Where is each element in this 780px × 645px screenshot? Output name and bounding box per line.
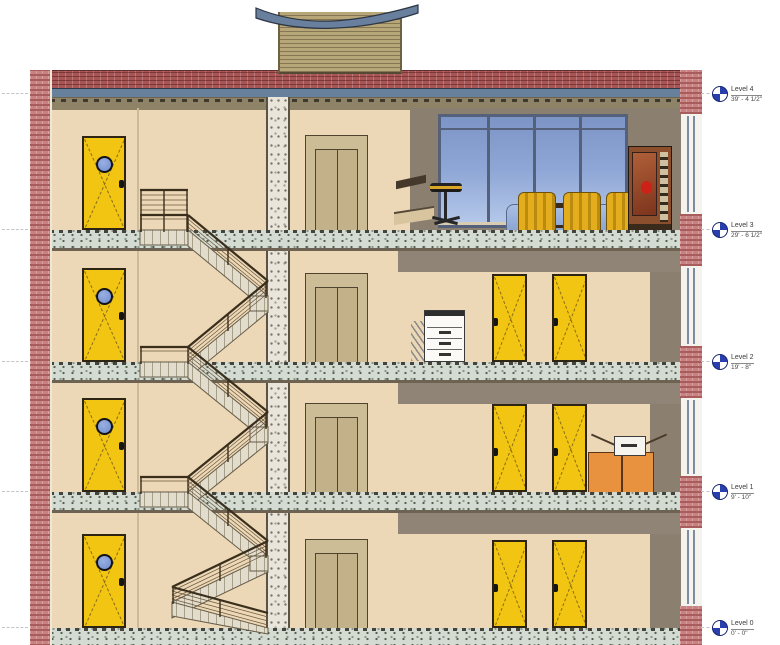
level-name: Level 2 (731, 354, 754, 364)
level-label: Level 0 0' - 0" (731, 620, 754, 638)
copier-drawer (427, 349, 462, 360)
roof-slab (30, 88, 700, 97)
ceiling-bulkhead (398, 250, 681, 272)
level-marker-level-3[interactable]: Level 3 29' - 6 1/2" (712, 222, 762, 240)
porthole-window (96, 288, 113, 305)
porthole-window (96, 156, 113, 173)
elevator-door-panels (315, 149, 358, 231)
door (492, 540, 527, 628)
level-label: Level 4 39' - 4 1/2" (731, 86, 762, 104)
copier-control-panel (425, 311, 464, 316)
vending-buttons (659, 151, 669, 223)
door-porthole (82, 268, 126, 362)
level-datum-target-icon (712, 354, 728, 370)
left-exterior-wall (30, 70, 52, 645)
right-wall-window (681, 266, 701, 346)
level-line (2, 93, 28, 94)
level-datum-target-icon (712, 86, 728, 102)
door (492, 274, 527, 362)
elevator-door-panels (315, 287, 358, 363)
door-swing-line (555, 275, 587, 359)
level-elevation: 0' - 0" (731, 630, 754, 637)
level-name: Level 1 (731, 484, 754, 494)
door-handle (553, 318, 558, 326)
door-porthole (82, 136, 126, 230)
bar-stool-seat (430, 183, 462, 192)
curved-roof (250, 0, 428, 40)
door (552, 404, 587, 492)
elevator-door-panels (315, 417, 358, 493)
right-wall-brick (680, 214, 702, 266)
building-section-view: Level 4 39' - 4 1/2" Level 3 29' - 6 1/2… (0, 0, 780, 645)
copier-drawer (427, 327, 462, 338)
door-swing-line (495, 541, 527, 625)
level-datum-target-icon (712, 620, 728, 636)
door-porthole (82, 534, 126, 628)
porthole-window (96, 554, 113, 571)
window-mullion (487, 117, 490, 225)
projector (614, 436, 646, 456)
door-handle (493, 584, 498, 592)
level-marker-level-4[interactable]: Level 4 39' - 4 1/2" (712, 86, 762, 104)
lounge-chair (518, 192, 556, 234)
level-line (2, 361, 28, 362)
right-wall-brick (680, 346, 702, 398)
level-marker-level-1[interactable]: Level 1 9' - 10" (712, 484, 754, 502)
vending-machine (628, 146, 672, 232)
lounge-chair (563, 192, 601, 234)
elevator-door (305, 539, 368, 629)
ceiling-bulkhead (398, 382, 681, 404)
right-wall-brick (680, 606, 702, 645)
level-marker-level-2[interactable]: Level 2 19' - 8" (712, 354, 754, 372)
level-label: Level 2 19' - 8" (731, 354, 754, 372)
level-name: Level 0 (731, 620, 754, 630)
right-wall-window (681, 528, 701, 606)
right-wall-window (681, 398, 701, 476)
porthole-window (96, 418, 113, 435)
ceiling-bulkhead (398, 512, 681, 534)
level-datum-target-icon (712, 484, 728, 500)
door-handle (119, 180, 124, 188)
level-datum-target-icon (712, 222, 728, 238)
right-wall-brick (680, 70, 702, 114)
door-porthole (82, 398, 126, 492)
copier (411, 310, 465, 362)
door-handle (493, 318, 498, 326)
level-name: Level 3 (731, 222, 762, 232)
level-label: Level 1 9' - 10" (731, 484, 754, 502)
right-wall-window (681, 114, 701, 214)
door (552, 274, 587, 362)
level-elevation: 19' - 8" (731, 364, 754, 371)
door-handle (553, 448, 558, 456)
door-swing-line (495, 405, 527, 489)
stairs (130, 178, 278, 645)
right-wall-brick (680, 476, 702, 528)
level-line (2, 491, 28, 492)
level-name: Level 4 (731, 86, 762, 96)
copier-body (424, 310, 465, 362)
level-marker-level-0[interactable]: Level 0 0' - 0" (712, 620, 754, 638)
door (492, 404, 527, 492)
elevator-door (305, 403, 368, 493)
door-handle (119, 442, 124, 450)
level-label: Level 3 29' - 6 1/2" (731, 222, 762, 240)
level-elevation: 29' - 6 1/2" (731, 232, 762, 239)
level-elevation: 39' - 4 1/2" (731, 96, 762, 103)
vending-logo (641, 181, 652, 194)
door-swing-line (555, 541, 587, 625)
door-handle (119, 312, 124, 320)
level-line (2, 627, 28, 628)
door (552, 540, 587, 628)
copier-drawer (427, 338, 462, 349)
level-elevation: 9' - 10" (731, 494, 754, 501)
bar-stool-post (444, 192, 447, 222)
level-line (2, 229, 28, 230)
elevator-door (305, 273, 368, 363)
door-handle (553, 584, 558, 592)
av-cart (588, 452, 654, 494)
vending-front-panel (632, 152, 657, 216)
door-handle (493, 448, 498, 456)
door-swing-line (495, 275, 527, 359)
elevator-door (305, 135, 368, 231)
door-handle (119, 578, 124, 586)
door-swing-line (555, 405, 587, 489)
elevator-door-panels (315, 553, 358, 629)
